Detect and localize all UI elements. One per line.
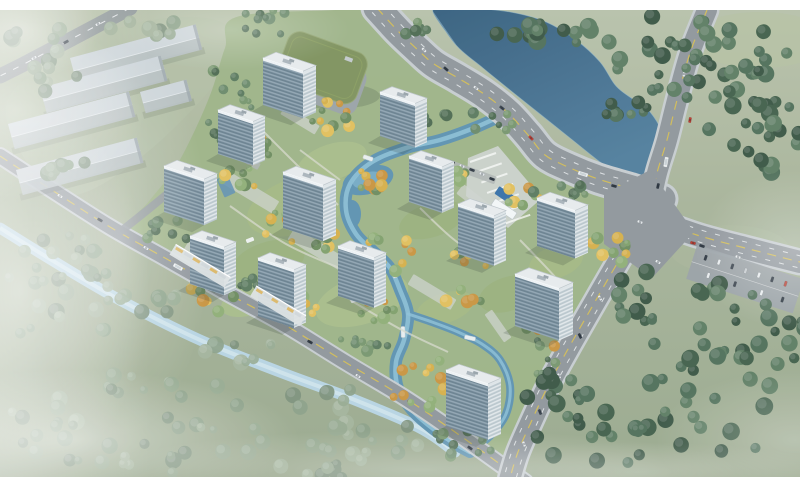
masterplan-aerial-rendering: [0, 0, 800, 485]
bottom-white-bar: [0, 477, 800, 485]
top-white-bar: [0, 0, 800, 10]
rendering-frame: [0, 0, 800, 485]
atmospheric-haze: [0, 0, 800, 485]
